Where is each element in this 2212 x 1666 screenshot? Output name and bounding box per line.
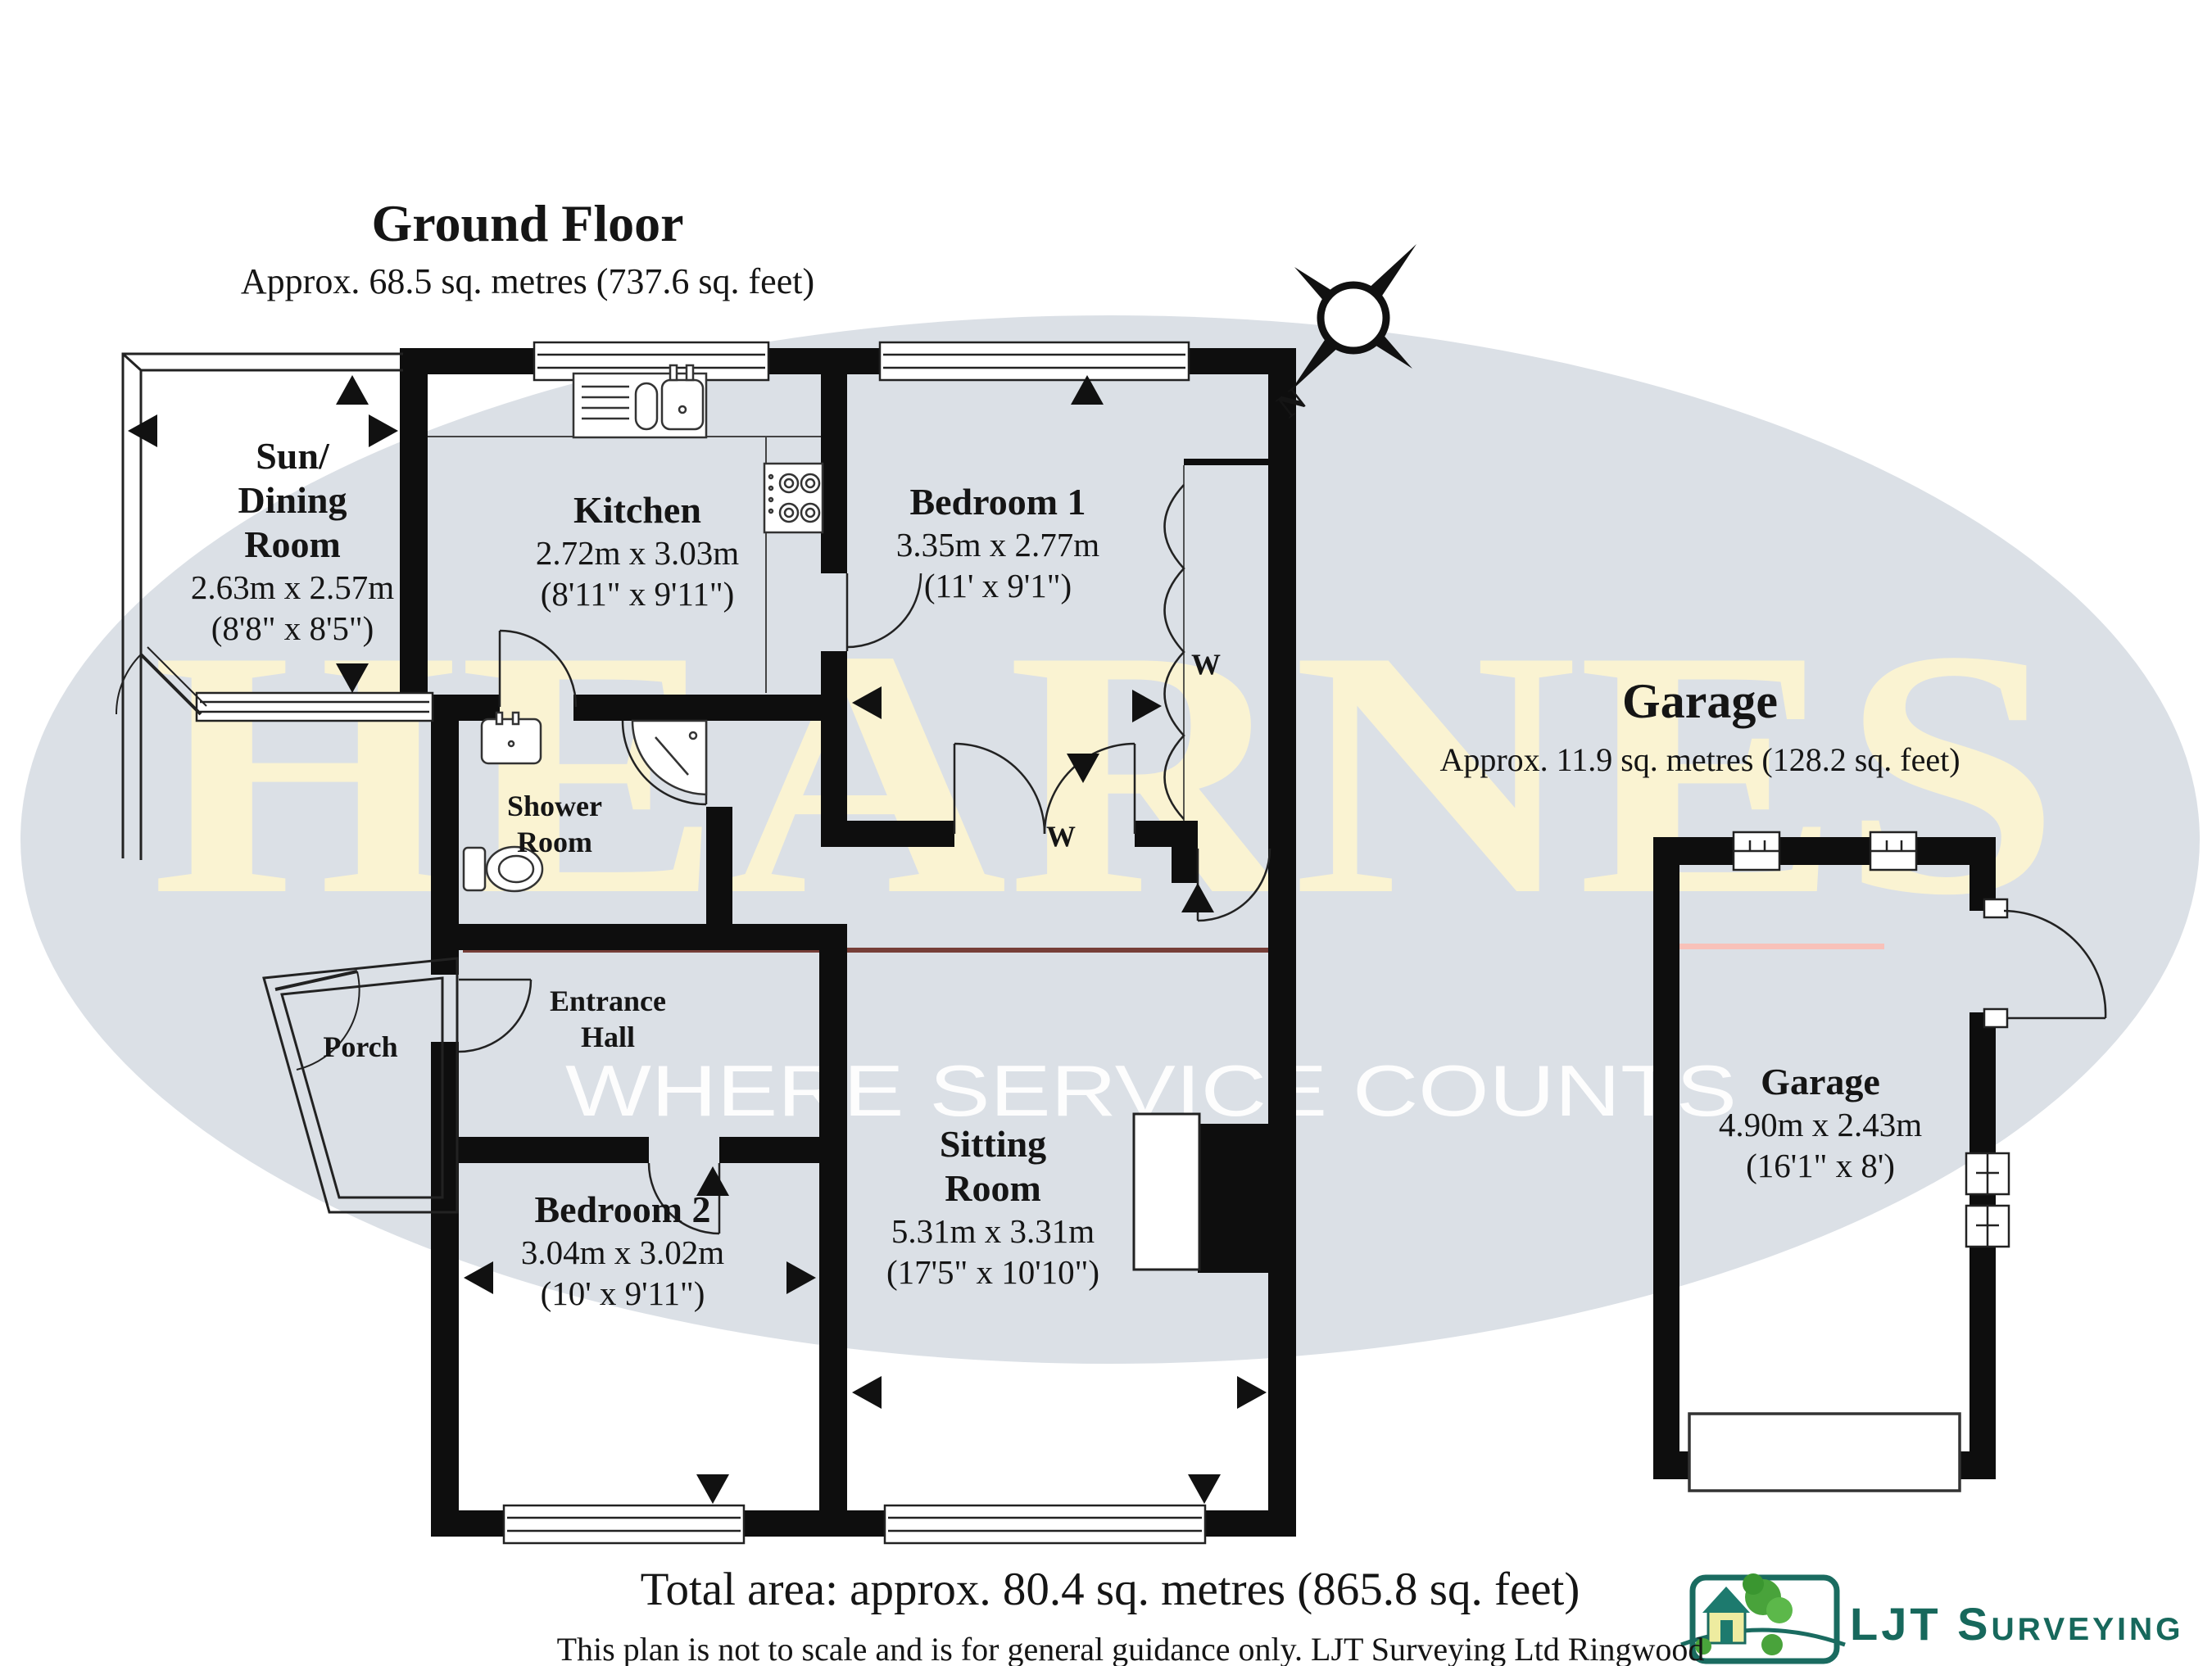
page-subtitle: Approx. 68.5 sq. metres (737.6 sq. feet) — [241, 260, 814, 302]
room-label-sitting: Sitting Room 5.31m x 3.31m (17'5" x 10'1… — [886, 1122, 1099, 1293]
hob-icon — [764, 464, 823, 532]
page-title: Ground Floor — [371, 193, 683, 254]
room-label-hall: Entrance Hall — [550, 983, 666, 1055]
room-label-sun-dining: Sun/ Dining Room 2.63m x 2.57m (8'8" x 8… — [191, 434, 394, 649]
garage-section-title: Garage — [1622, 673, 1778, 730]
room-label-garage: Garage 4.90m x 2.43m (16'1" x 8') — [1719, 1060, 1922, 1186]
ljt-logo-text: LJT Surveying — [1850, 1597, 2183, 1650]
total-area-text: Total area: approx. 80.4 sq. metres (865… — [641, 1563, 1580, 1616]
room-label-shower: Shower Room — [507, 788, 602, 860]
sink-icon — [573, 365, 706, 437]
disclaimer-text: This plan is not to scale and is for gen… — [557, 1630, 1705, 1666]
wardrobe-label: W — [1191, 647, 1221, 681]
floorplan-drawing: HEARNES WHERE SERVICE COUNTS — [0, 0, 2212, 1666]
room-label-bedroom1: Bedroom 1 3.35m x 2.77m (11' x 9'1") — [896, 480, 1099, 606]
basin-icon — [482, 713, 541, 763]
wardrobe-label: W — [1046, 819, 1076, 853]
fireplace-icon — [1134, 1114, 1199, 1270]
room-label-porch: Porch — [323, 1029, 397, 1065]
chimney-breast — [1198, 1124, 1270, 1273]
artifact-line — [1655, 944, 1884, 949]
room-label-kitchen: Kitchen 2.72m x 3.03m (8'11" x 9'11") — [536, 488, 739, 614]
room-label-bedroom2: Bedroom 2 3.04m x 3.02m (10' x 9'11") — [521, 1188, 724, 1314]
floorplan-page: HEARNES WHERE SERVICE COUNTS — [0, 0, 2212, 1666]
garage-door — [1689, 1414, 1960, 1491]
garage-section-subtitle: Approx. 11.9 sq. metres (128.2 sq. feet) — [1439, 740, 1960, 779]
ljt-logo-icon — [1681, 1573, 1845, 1661]
